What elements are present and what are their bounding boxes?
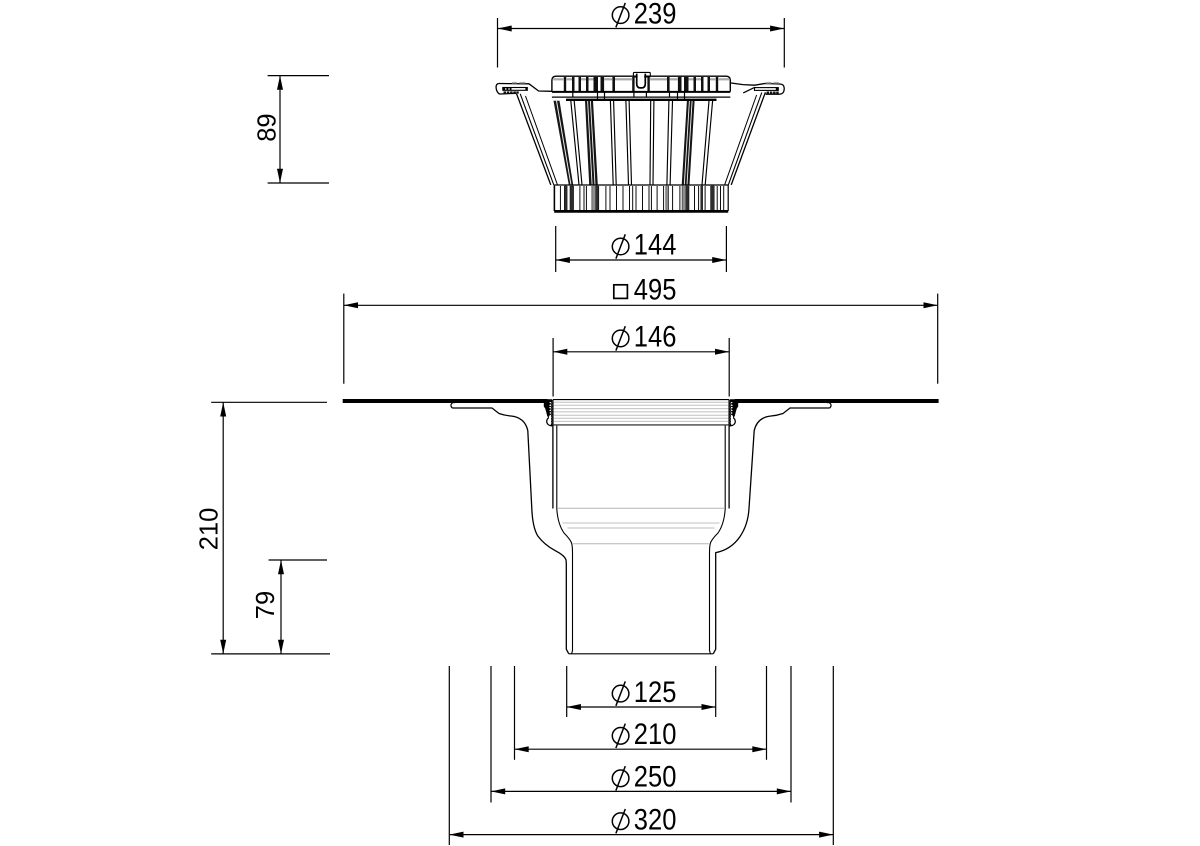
svg-text:144: 144 xyxy=(634,229,677,262)
svg-text:146: 146 xyxy=(634,321,677,354)
svg-text:89: 89 xyxy=(252,113,282,141)
svg-text:320: 320 xyxy=(634,803,677,836)
svg-text:210: 210 xyxy=(634,718,677,751)
svg-text:250: 250 xyxy=(634,761,677,794)
svg-text:239: 239 xyxy=(634,0,677,30)
svg-text:210: 210 xyxy=(194,508,224,551)
svg-text:125: 125 xyxy=(634,676,677,709)
svg-text:495: 495 xyxy=(634,274,677,307)
svg-text:79: 79 xyxy=(250,591,280,619)
